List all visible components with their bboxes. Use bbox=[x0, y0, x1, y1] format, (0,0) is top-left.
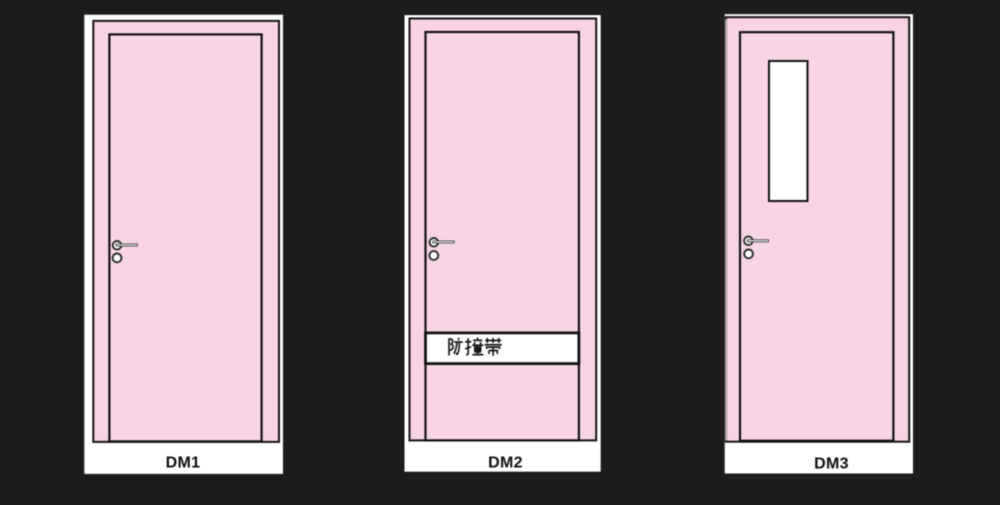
svg-text:DM2: DM2 bbox=[488, 455, 523, 472]
svg-text:DM1: DM1 bbox=[166, 455, 201, 472]
svg-text:DM3: DM3 bbox=[814, 456, 849, 473]
